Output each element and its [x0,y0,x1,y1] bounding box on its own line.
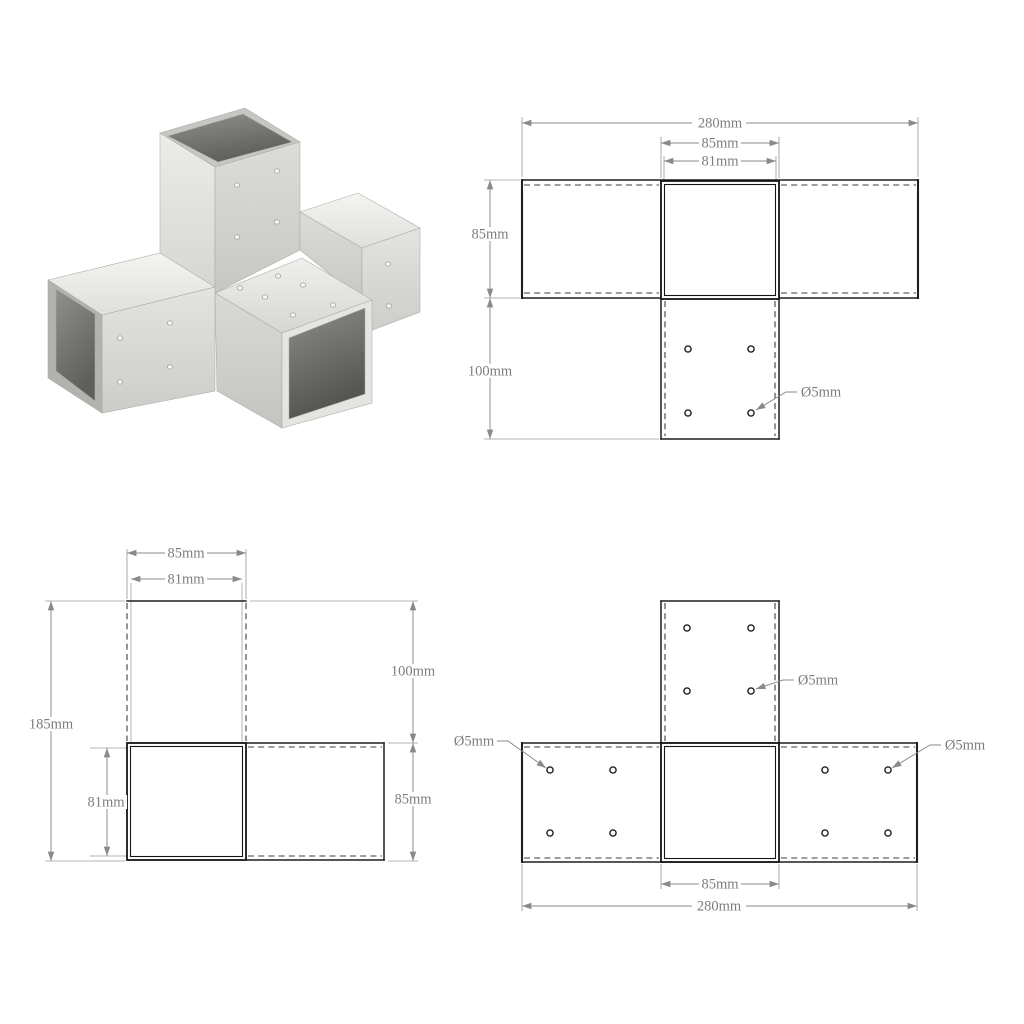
dim-label-arm-depth: 85mm [471,226,509,242]
bolt-hole [684,688,690,694]
screw-hole [117,336,122,340]
diagram-front-view: Ø5mm Ø5mm Ø5mm 85mm 280mm [454,601,986,914]
screw-hole [385,262,390,266]
post-section-square [661,743,779,862]
screw-hole [290,313,295,317]
dim-label-inner-height: 81mm [87,794,125,810]
screw-hole [167,321,172,325]
screw-hole [274,220,279,224]
screw-hole [386,304,391,308]
dim-label-total-width: 280mm [698,115,743,131]
dim-label-square-outer: 85mm [167,545,205,561]
dim-label-square-inner: 81mm [701,153,739,169]
dim-label-square-outer: 85mm [701,876,739,892]
diagram-top-view: 280mm 85mm 81mm 85mm 100mm Ø5mm [466,115,918,439]
bolt-hole [822,830,828,836]
dim-label-plate-length: 100mm [391,663,436,679]
bolt-hole [610,767,616,773]
screw-hole [237,286,242,290]
product-render-x-connector [48,108,420,428]
bolt-hole [610,830,616,836]
screw-hole [262,295,267,299]
bolt-hole [547,767,553,773]
screw-hole [274,169,279,173]
screw-hole [117,380,122,384]
bolt-hole [748,410,754,416]
bolt-hole [885,830,891,836]
screw-hole [300,283,305,287]
dim-label-total-height: 185mm [29,716,74,732]
dim-label-square-outer: 85mm [701,135,739,151]
bolt-hole [885,767,891,773]
screw-hole [275,274,280,278]
dim-label-square-inner: 81mm [167,571,205,587]
dim-label-plate-length: 100mm [468,363,513,379]
dim-label-total-width: 280mm [697,898,742,914]
bolt-hole [685,346,691,352]
post-section-square [127,743,246,860]
hole-diameter-callout: Ø5mm [798,672,839,688]
bolt-hole [822,767,828,773]
bolt-hole [748,688,754,694]
bolt-hole [685,410,691,416]
product-dimension-sheet: 280mm 85mm 81mm 85mm 100mm Ø5mm [0,0,1024,1024]
hole-diameter-callout: Ø5mm [801,384,842,400]
bolt-hole [748,625,754,631]
bolt-hole [547,830,553,836]
post-section-square [661,181,779,299]
screw-hole [330,303,335,307]
screw-hole [234,235,239,239]
dim-label-arm-height: 85mm [394,791,432,807]
screw-hole [167,365,172,369]
diagram-side-view: 85mm 81mm 185mm 100mm 85mm 81mm [26,545,438,861]
bolt-hole [684,625,690,631]
hole-diameter-callout: Ø5mm [945,737,986,753]
bolt-hole [748,346,754,352]
hole-diameter-callout: Ø5mm [454,733,495,749]
screw-hole [234,183,239,187]
sheet-canvas: 280mm 85mm 81mm 85mm 100mm Ø5mm [0,0,1024,1024]
